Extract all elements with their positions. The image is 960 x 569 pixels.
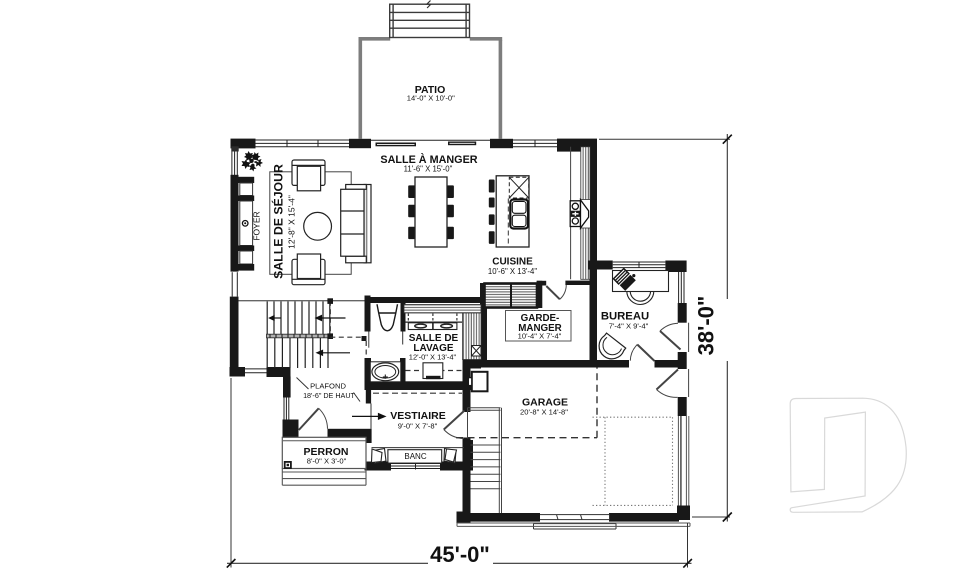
svg-text:9'-0" X 7'-8": 9'-0" X 7'-8" [398,421,438,430]
svg-text:38'-0": 38'-0" [694,296,719,356]
svg-text:18'-6" DE HAUT: 18'-6" DE HAUT [303,391,355,400]
svg-text:VESTIAIRE: VESTIAIRE [390,410,445,422]
svg-text:SALLE DE SÉJOUR: SALLE DE SÉJOUR [271,164,286,279]
svg-text:12'-8" X 15'-4": 12'-8" X 15'-4" [287,195,297,249]
svg-text:PLAFOND: PLAFOND [310,382,346,391]
svg-text:8'-0" X 3'-0": 8'-0" X 3'-0" [307,457,347,466]
svg-text:45'-0": 45'-0" [430,542,490,567]
svg-text:14'-0" X 10'-0": 14'-0" X 10'-0" [407,93,455,102]
svg-text:FOYER: FOYER [252,211,262,240]
svg-text:12'-0" X 13'-4": 12'-0" X 13'-4" [409,352,457,361]
svg-text:20'-8" X 14'-8": 20'-8" X 14'-8" [520,407,568,416]
svg-text:7'-4" X 9'-4": 7'-4" X 9'-4" [609,322,649,331]
svg-text:10'-4" X 7'-4": 10'-4" X 7'-4" [518,332,562,341]
svg-text:BANC: BANC [404,452,426,461]
svg-text:10'-6" X 13'-4": 10'-6" X 13'-4" [488,267,537,276]
svg-text:11'-6" X 15'-0": 11'-6" X 15'-0" [404,165,453,174]
